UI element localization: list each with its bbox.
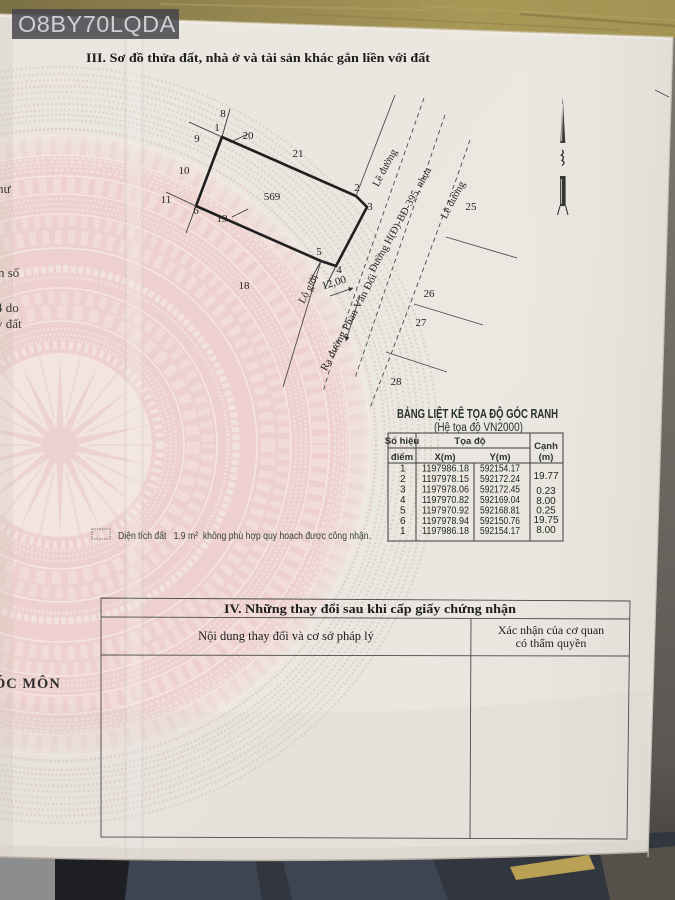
svg-text:4 do: 4 do <box>0 300 19 315</box>
svg-text:19.77: 19.77 <box>533 471 558 482</box>
svg-text:ÓC MÔN: ÓC MÔN <box>0 675 61 692</box>
svg-text:1197978.15: 1197978.15 <box>422 474 469 485</box>
svg-text:9: 9 <box>194 133 200 145</box>
svg-text:592154.17: 592154.17 <box>480 464 520 475</box>
svg-text:1: 1 <box>400 464 406 475</box>
svg-text:4: 4 <box>400 495 406 506</box>
svg-text:592154.17: 592154.17 <box>480 526 520 537</box>
svg-text:592169.04: 592169.04 <box>480 495 520 506</box>
svg-text:11: 11 <box>161 194 172 206</box>
svg-text:Y(m): Y(m) <box>489 452 510 463</box>
svg-text:2: 2 <box>400 474 406 485</box>
svg-text:569: 569 <box>264 191 281 203</box>
svg-text:(Hệ tọa độ VN2000): (Hệ tọa độ VN2000) <box>434 422 523 434</box>
svg-text:có thẩm quyền: có thẩm quyền <box>516 636 587 650</box>
svg-text:III. Sơ đồ thửa đất, nhà ở và: III. Sơ đồ thửa đất, nhà ở và tài sản kh… <box>86 50 431 65</box>
svg-text:21: 21 <box>293 148 304 160</box>
svg-text:18: 18 <box>239 280 251 292</box>
svg-text:1: 1 <box>400 526 406 537</box>
svg-text:(m): (m) <box>539 452 554 463</box>
svg-text:BẢNG LIỆT KÊ TỌA ĐỘ GÓC RANH: BẢNG LIỆT KÊ TỌA ĐỘ GÓC RANH <box>397 406 558 421</box>
svg-text:25: 25 <box>466 201 478 213</box>
svg-text:2: 2 <box>354 182 360 194</box>
svg-text:8: 8 <box>220 108 226 120</box>
svg-text:O8BY70LQDA: O8BY70LQDA <box>18 11 176 37</box>
svg-text:1197986.18: 1197986.18 <box>422 526 469 537</box>
svg-text:n số: n số <box>0 265 20 280</box>
svg-text:Số hiệu: Số hiệu <box>385 436 420 447</box>
svg-text:592168.81: 592168.81 <box>480 506 520 517</box>
svg-text:1197970.82: 1197970.82 <box>422 495 469 506</box>
svg-text:8.00: 8.00 <box>536 525 556 536</box>
svg-text:1197986.18: 1197986.18 <box>422 464 469 475</box>
svg-text:26: 26 <box>424 288 436 300</box>
svg-text:592172.45: 592172.45 <box>480 485 520 496</box>
svg-text:IV. Những thay đổi sau khi cấp: IV. Những thay đổi sau khi cấp giấy chứn… <box>224 601 517 616</box>
svg-text:3: 3 <box>367 201 373 213</box>
svg-text:6: 6 <box>193 205 199 217</box>
svg-text:3: 3 <box>400 485 406 496</box>
svg-text:Diện tích đất 1.9 m² không: Diện tích đất 1.9 m² không phù hợp quy h… <box>118 530 371 542</box>
svg-text:điểm: điểm <box>391 452 413 463</box>
svg-text:5: 5 <box>316 246 322 258</box>
svg-text:Nội dung thay đổi và cơ sở phá: Nội dung thay đổi và cơ sở pháp lý <box>198 629 374 643</box>
svg-text:Cạnh: Cạnh <box>534 441 558 452</box>
svg-text:Xác nhận của cơ quan: Xác nhận của cơ quan <box>498 623 604 637</box>
svg-text:20: 20 <box>243 130 255 142</box>
svg-text:10: 10 <box>179 165 191 177</box>
svg-text:Lộ giới: Lộ giới <box>297 273 321 306</box>
svg-text:Tọa độ: Tọa độ <box>454 436 485 447</box>
svg-text:12,00: 12,00 <box>320 273 348 292</box>
svg-text:ỷ đất: ỷ đất <box>0 316 22 331</box>
svg-text:19: 19 <box>217 213 229 225</box>
svg-text:28: 28 <box>391 376 403 388</box>
svg-text:27: 27 <box>416 317 428 329</box>
svg-text:5: 5 <box>400 506 406 517</box>
svg-text:1197978.06: 1197978.06 <box>422 485 469 496</box>
svg-text:X(m): X(m) <box>434 452 455 463</box>
svg-text:Lề đường: Lề đường <box>371 147 400 189</box>
svg-text:592172.24: 592172.24 <box>480 474 520 485</box>
svg-text:1: 1 <box>214 122 220 134</box>
svg-text:1197970.92: 1197970.92 <box>422 506 469 517</box>
svg-text:hư: hư <box>0 181 12 196</box>
